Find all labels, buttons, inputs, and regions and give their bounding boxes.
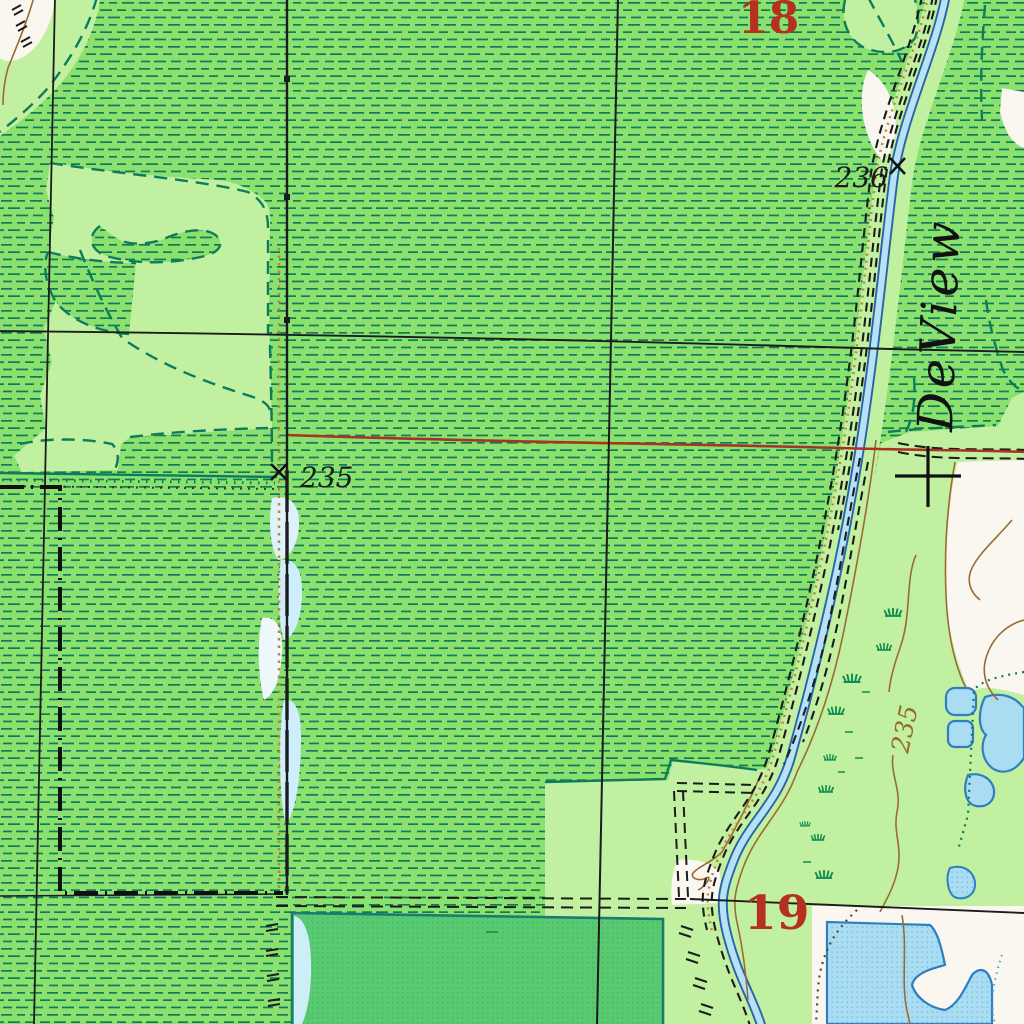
spot-elevation-235: 235 <box>299 461 353 494</box>
section-number-18: 18 <box>738 0 799 44</box>
section-number-19: 19 <box>744 886 809 941</box>
clearing-left-center <box>14 162 272 472</box>
topo-map-svg: 18 19 236 235 235 DeView <box>0 0 1024 1024</box>
map-canvas: 18 19 236 235 235 DeView <box>0 0 1024 1024</box>
bottom-pond <box>292 913 663 1024</box>
stream-name-label: DeView <box>907 219 971 434</box>
spot-elevation-236: 236 <box>834 161 888 194</box>
